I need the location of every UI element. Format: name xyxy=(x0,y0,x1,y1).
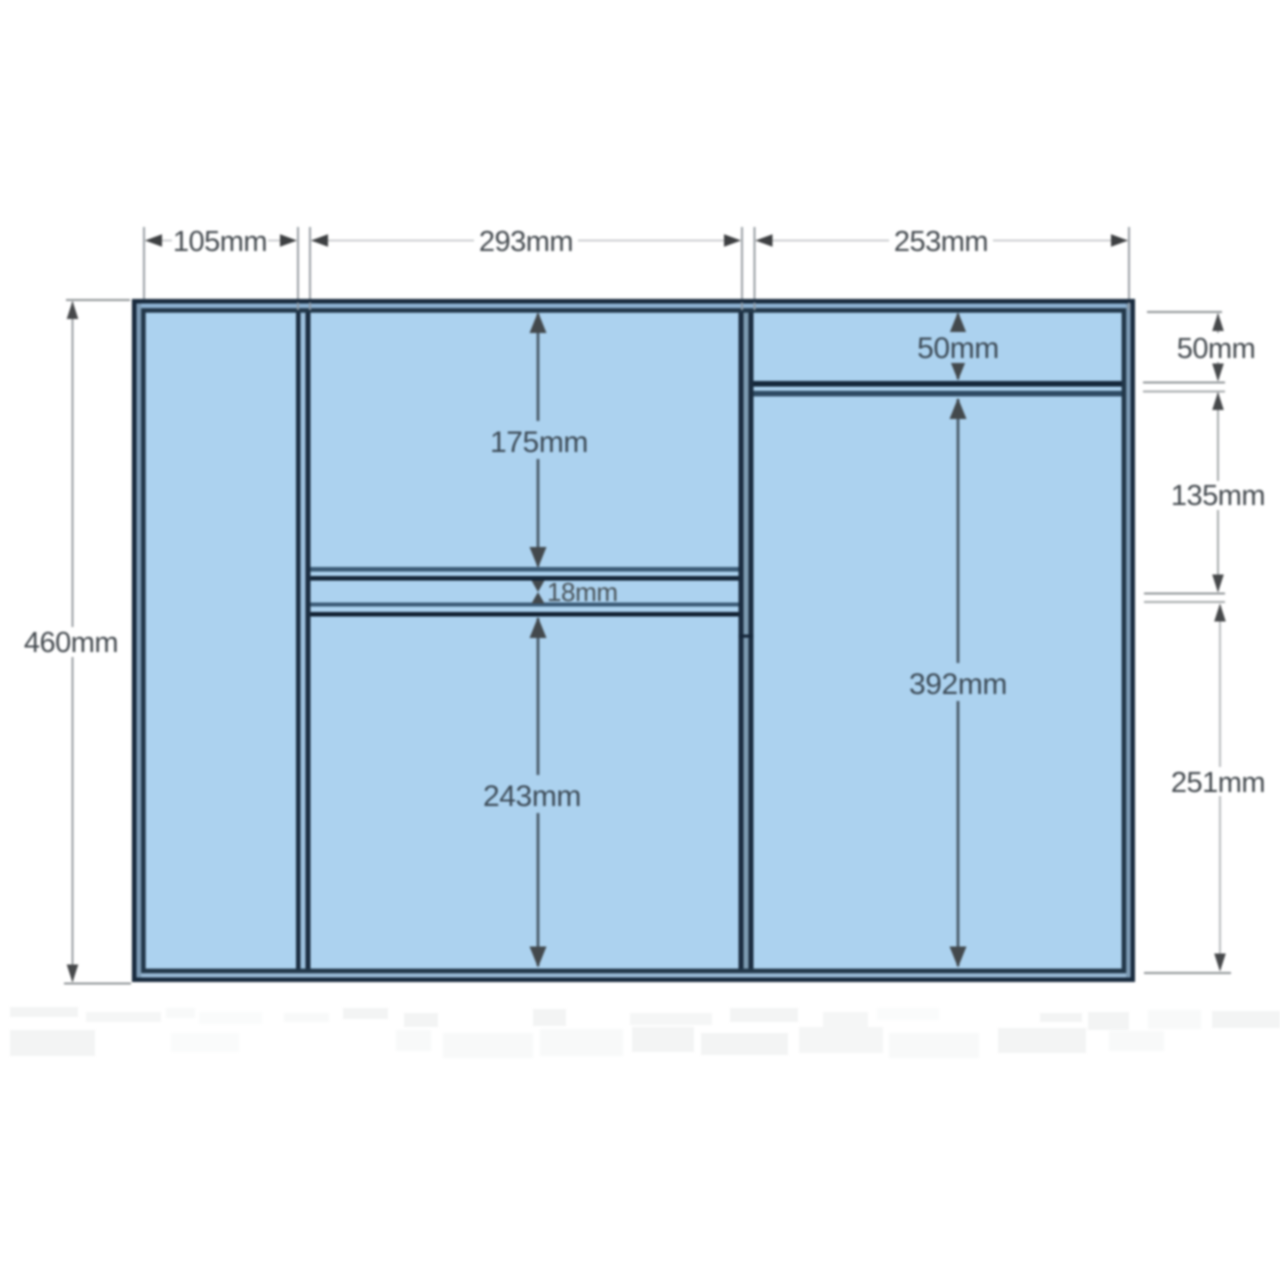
svg-text:243mm: 243mm xyxy=(483,780,581,813)
svg-text:135mm: 135mm xyxy=(1171,480,1265,512)
svg-text:50mm: 50mm xyxy=(1177,333,1256,365)
svg-text:50mm: 50mm xyxy=(917,332,999,365)
svg-text:293mm: 293mm xyxy=(479,226,573,258)
svg-text:251mm: 251mm xyxy=(1171,767,1265,799)
svg-text:175mm: 175mm xyxy=(490,426,588,459)
svg-text:105mm: 105mm xyxy=(173,226,267,258)
svg-text:392mm: 392mm xyxy=(909,668,1007,701)
svg-text:460mm: 460mm xyxy=(24,627,118,659)
svg-text:253mm: 253mm xyxy=(894,226,988,258)
svg-text:18mm: 18mm xyxy=(547,577,618,607)
